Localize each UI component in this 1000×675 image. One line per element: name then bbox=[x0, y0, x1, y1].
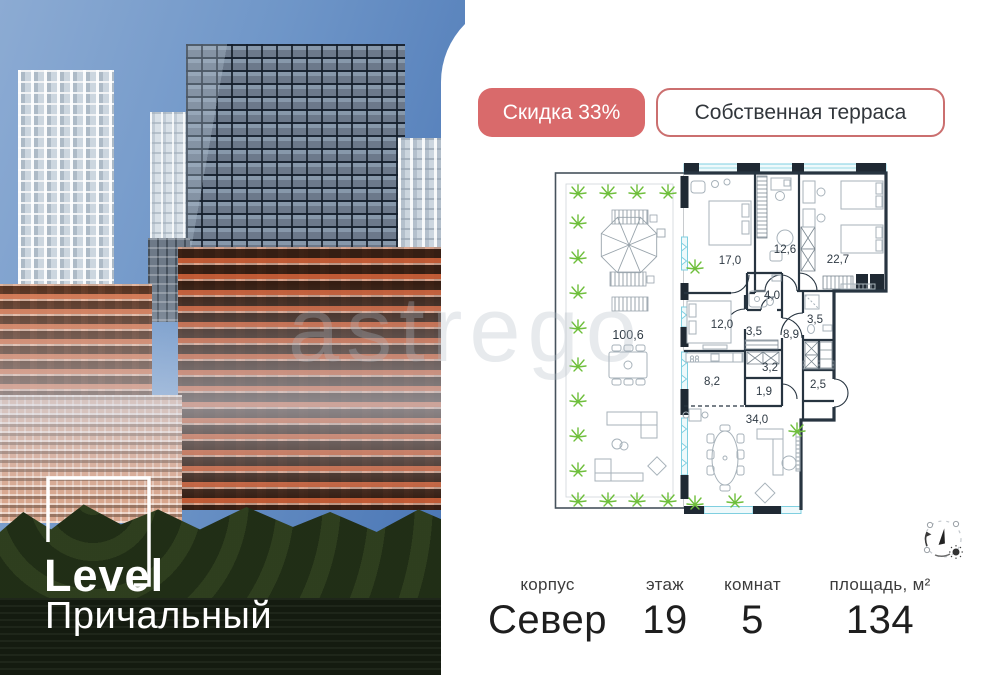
kitchen-units bbox=[686, 353, 743, 362]
detail-floor: этаж 19 bbox=[625, 575, 705, 643]
logo-project-text: Причальный bbox=[45, 595, 272, 638]
room-area-hall: 3,5 bbox=[746, 326, 762, 338]
badges-row: Скидка 33% Собственная терраса bbox=[478, 88, 945, 137]
terrace-badge: Собственная терраса bbox=[656, 88, 945, 137]
detail-floor-label: этаж bbox=[625, 575, 705, 595]
room-area-corridor: 8,9 bbox=[783, 329, 799, 341]
room-area-bedroom-3: 12,0 bbox=[711, 319, 733, 331]
level-logo: Level Причальный bbox=[46, 476, 316, 646]
detail-rooms: комнат 5 bbox=[705, 575, 800, 643]
detail-building-label: корпус bbox=[470, 575, 625, 595]
room-area-terrace: 100,6 bbox=[612, 328, 643, 342]
room-area-wc: 1,9 bbox=[756, 386, 772, 398]
terrace-dining-set bbox=[609, 345, 647, 385]
room-area-bathroom-2: 3,5 bbox=[807, 314, 823, 326]
room-area-bedroom-1: 17,0 bbox=[719, 255, 741, 267]
discount-badge: Скидка 33% bbox=[478, 88, 645, 137]
room-area-study: 12,6 bbox=[774, 244, 796, 256]
detail-building: корпус Север bbox=[470, 575, 625, 643]
detail-area: площадь, м² 134 bbox=[800, 575, 960, 643]
room-area-bedroom-2: 22,7 bbox=[827, 254, 849, 266]
room-area-laundry: 3,2 bbox=[762, 362, 778, 374]
detail-floor-value: 19 bbox=[625, 598, 705, 643]
detail-building-value: Север bbox=[470, 598, 625, 643]
sun-icon bbox=[949, 545, 963, 559]
building-photo: Level Причальный bbox=[0, 0, 465, 675]
detail-rooms-value: 5 bbox=[705, 598, 800, 643]
room-area-entry: 2,5 bbox=[810, 379, 826, 391]
listing-card[interactable]: Level Причальный astrego Скидка 33% Собс… bbox=[0, 0, 1000, 675]
detail-area-label: площадь, м² bbox=[800, 575, 960, 595]
room-area-living: 34,0 bbox=[746, 414, 768, 426]
room-area-kitchen: 8,2 bbox=[704, 376, 720, 388]
detail-rooms-label: комнат bbox=[705, 575, 800, 595]
listing-details: корпус Север этаж 19 комнат 5 площадь, м… bbox=[470, 575, 960, 643]
compass-icon bbox=[916, 512, 970, 566]
room-area-bathroom-1: 4,0 bbox=[764, 290, 780, 302]
floor-plan: 100,6 17,0 12,6 22,7 4,0 12,0 3,5 8,9 3,… bbox=[553, 163, 898, 515]
detail-area-value: 134 bbox=[800, 598, 960, 643]
